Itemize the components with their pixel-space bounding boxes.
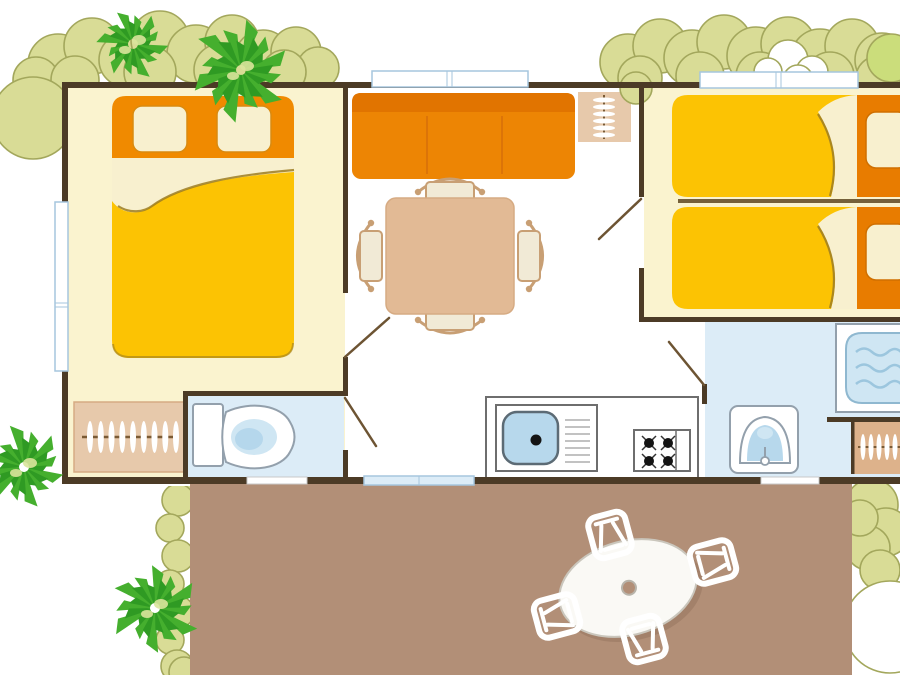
palm-center-highlight: [227, 72, 239, 80]
palm-center-highlight: [154, 599, 168, 609]
wardrobe-bedroom: [74, 402, 186, 472]
coat-rack: [578, 92, 631, 142]
threshold-wc: [247, 477, 307, 484]
bush-circle: [162, 540, 194, 572]
palm-center-highlight: [132, 35, 146, 45]
wardrobe2-edge: [851, 422, 855, 474]
single-bed-1: [672, 95, 900, 197]
window-living: [372, 71, 528, 87]
sofa-back: [352, 93, 575, 112]
wall-wc-top: [183, 391, 348, 396]
window-left: [55, 202, 68, 371]
sink-basin: [503, 412, 558, 464]
palm-center-highlight: [23, 458, 37, 468]
wall-bathroom-stub: [702, 384, 707, 404]
double-bed-pillow-left: [133, 106, 187, 152]
single-bed-2-pillow: [866, 224, 900, 280]
toilet-tank: [193, 404, 223, 466]
floorplan-svg: [0, 0, 900, 675]
double-bed-pillow-right: [217, 106, 271, 152]
dining-table: [386, 198, 514, 314]
wall-bedroom2: [639, 88, 644, 197]
threshold-bathroom: [761, 477, 819, 484]
wardrobe-hangers-icon: [87, 421, 179, 453]
washbasin-highlight: [757, 427, 773, 439]
palm-center-highlight: [141, 610, 153, 618]
washbasin: [730, 406, 798, 473]
palm-center-highlight: [119, 46, 131, 54]
terrace-deck: [190, 482, 852, 675]
sink-drain: [531, 435, 542, 446]
twin-beds: [672, 95, 900, 309]
wall-bedroom2-stub: [639, 268, 644, 322]
twin-beds-divider: [678, 199, 900, 203]
palm-center-highlight: [10, 469, 22, 477]
wall-bedroom2-bottom: [639, 317, 900, 322]
wall-shower: [827, 417, 900, 422]
sofa: [352, 93, 575, 179]
stove: [634, 430, 690, 471]
bush-circle: [162, 484, 194, 516]
single-bed-2: [672, 207, 900, 309]
floorplan-stage: [0, 0, 900, 675]
kitchen-counter: [486, 397, 698, 478]
window-bedroom2: [700, 72, 858, 88]
single-bed-1-pillow: [866, 112, 900, 168]
toilet-water-deep: [235, 428, 263, 450]
washbasin-faucet: [761, 457, 769, 465]
wall-bedroom: [343, 88, 348, 293]
wardrobe-bathroom: [851, 422, 900, 474]
sink-drainer-lines: [565, 420, 590, 462]
toilet: [193, 404, 295, 468]
wall-wc-left: [183, 391, 188, 480]
bush-circle: [156, 514, 184, 542]
shower: [836, 324, 900, 412]
palm-center-highlight: [240, 61, 254, 71]
wall-bedroom-stub: [343, 357, 348, 396]
wall-wc-stub: [343, 450, 348, 480]
double-bed: [112, 96, 294, 358]
